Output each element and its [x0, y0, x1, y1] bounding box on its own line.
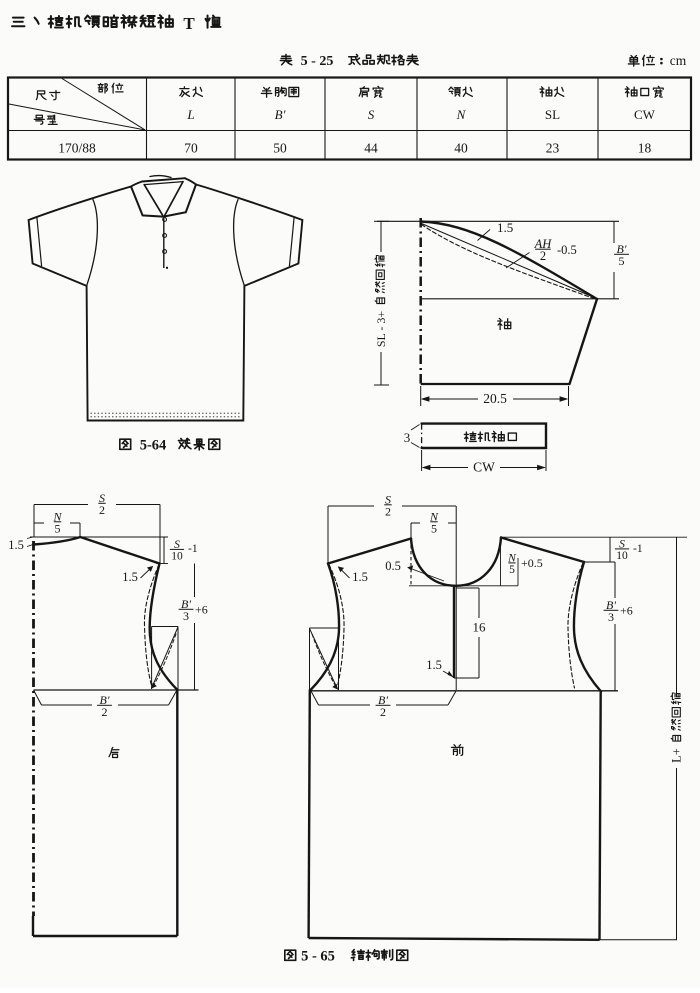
svg-text:B': B': [275, 107, 286, 122]
svg-text:20.5: 20.5: [483, 391, 507, 406]
svg-text:+6: +6: [195, 603, 208, 617]
svg-text:70: 70: [184, 141, 198, 156]
svg-text:3: 3: [608, 610, 614, 624]
svg-text:2: 2: [102, 705, 108, 719]
svg-text:5: 5: [431, 521, 437, 535]
svg-text:5: 5: [509, 564, 515, 576]
svg-text:5: 5: [619, 254, 625, 268]
svg-text:2: 2: [99, 503, 105, 517]
svg-text:18: 18: [638, 141, 652, 156]
svg-text:SL: SL: [545, 107, 560, 122]
svg-text:3: 3: [183, 609, 189, 623]
svg-text:0.5: 0.5: [385, 559, 401, 573]
svg-text:10: 10: [171, 551, 183, 563]
svg-text:S: S: [368, 107, 375, 122]
svg-text:5 - 25: 5 - 25: [301, 54, 334, 69]
svg-text:-1: -1: [633, 543, 643, 555]
svg-text:1.5: 1.5: [497, 220, 513, 235]
svg-text:CW: CW: [634, 107, 656, 122]
svg-text:CW: CW: [473, 460, 495, 475]
svg-text:10: 10: [616, 550, 628, 562]
svg-text:50: 50: [273, 141, 287, 156]
svg-text:L: L: [186, 107, 194, 122]
svg-text:44: 44: [364, 141, 378, 156]
svg-text:-1: -1: [188, 543, 198, 555]
svg-text:5-64: 5-64: [140, 438, 167, 454]
svg-text:+6: +6: [620, 604, 633, 618]
svg-text:1.5: 1.5: [8, 538, 24, 552]
svg-text:16: 16: [473, 620, 487, 635]
svg-text:23: 23: [546, 141, 560, 156]
svg-text:40: 40: [454, 141, 468, 156]
svg-text:N: N: [456, 107, 467, 122]
svg-text:2: 2: [540, 249, 546, 263]
svg-text:+0.5: +0.5: [521, 556, 543, 570]
svg-text:5: 5: [55, 521, 61, 535]
svg-text:cm: cm: [670, 53, 687, 68]
svg-text:SL - 3+: SL - 3+: [374, 311, 388, 348]
svg-text:170/88: 170/88: [58, 141, 96, 156]
svg-text:L+: L+: [670, 748, 684, 763]
svg-text:1.5: 1.5: [352, 570, 368, 584]
svg-text:1.5: 1.5: [122, 570, 138, 584]
svg-text:5 - 65: 5 - 65: [301, 949, 335, 965]
svg-text:2: 2: [385, 504, 391, 518]
svg-text:3: 3: [404, 430, 411, 445]
svg-text:2: 2: [380, 705, 386, 719]
svg-text:1.5: 1.5: [426, 658, 442, 672]
svg-text:-0.5: -0.5: [557, 243, 577, 257]
svg-text:T: T: [183, 14, 195, 33]
